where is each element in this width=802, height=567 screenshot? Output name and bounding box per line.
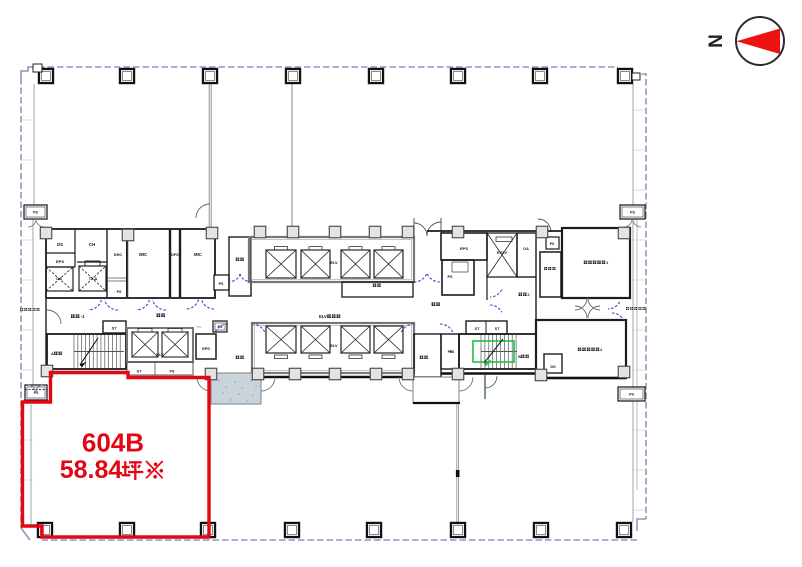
svg-text:PS: PS	[550, 242, 555, 246]
svg-text:N: N	[706, 34, 727, 48]
svg-text:WIC: WIC	[139, 252, 147, 257]
svg-text:PS: PS	[117, 290, 122, 294]
svg-text:PS: PS	[219, 282, 224, 286]
svg-text:T.CA: T.CA	[89, 277, 98, 281]
svg-text:DPS: DPS	[171, 253, 179, 257]
svg-text:604B: 604B	[82, 428, 144, 458]
svg-text:MIC: MIC	[194, 252, 202, 257]
svg-text:DHC: DHC	[114, 253, 122, 257]
svg-text:PS: PS	[629, 393, 634, 397]
svg-text:ELV: ELV	[330, 260, 338, 265]
svg-text:ELV: ELV	[319, 314, 327, 319]
svg-text:-1: -1	[81, 314, 85, 319]
svg-text:B: B	[518, 354, 521, 359]
svg-text:PS: PS	[448, 350, 453, 354]
svg-text:PS: PS	[630, 211, 635, 215]
svg-text:OA: OA	[523, 247, 529, 251]
svg-text:ELV: ELV	[330, 343, 338, 348]
svg-text:EPS: EPS	[56, 259, 64, 264]
svg-text:PS: PS	[33, 211, 38, 215]
svg-text:E.ELV: E.ELV	[497, 251, 508, 255]
svg-text:PS: PS	[170, 370, 175, 374]
svg-text:DS: DS	[57, 242, 63, 247]
svg-text:58.84: 58.84	[60, 456, 123, 484]
svg-text:TEL: TEL	[196, 325, 202, 329]
svg-text:EPS: EPS	[460, 246, 468, 251]
svg-text:ELV: ELV	[156, 352, 164, 357]
svg-text:EPS: EPS	[202, 347, 210, 351]
svg-text:PS: PS	[447, 275, 453, 279]
svg-text:ST: ST	[112, 327, 118, 331]
svg-text:ST: ST	[495, 327, 500, 331]
svg-text:A: A	[51, 351, 54, 356]
svg-text:CH: CH	[89, 242, 95, 247]
svg-text:ST: ST	[475, 327, 480, 331]
svg-text:ST: ST	[137, 370, 142, 374]
svg-text:OA: OA	[56, 276, 62, 281]
svg-text:DS: DS	[550, 365, 556, 369]
